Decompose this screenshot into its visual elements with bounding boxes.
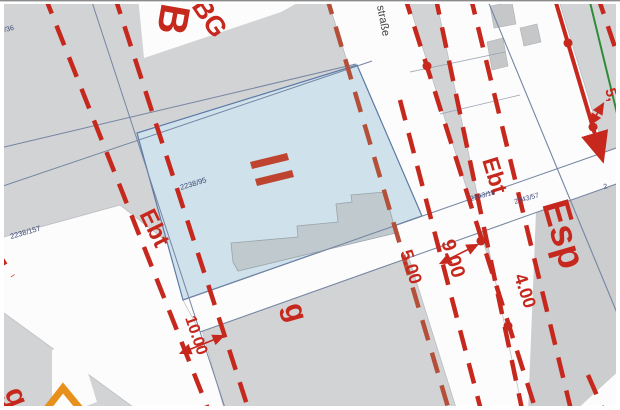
boundary-point-2: [564, 39, 573, 48]
site-plan-map: BBGstraßeEbtEbtEspgg10.005.009.004.005,2…: [0, 0, 620, 410]
map-areas-layer: [0, 0, 620, 410]
map-canvas: BBGstraßeEbtEbtEspgg10.005.009.004.005,2…: [0, 0, 620, 410]
zone-g-bottom-left-label: g: [0, 382, 35, 410]
boundary-point-5: [504, 322, 513, 331]
boundary-point-4: [477, 237, 486, 246]
boundary-point-1: [423, 62, 432, 71]
building-gray-2: [520, 24, 541, 46]
boundary-point-3: [589, 123, 598, 132]
